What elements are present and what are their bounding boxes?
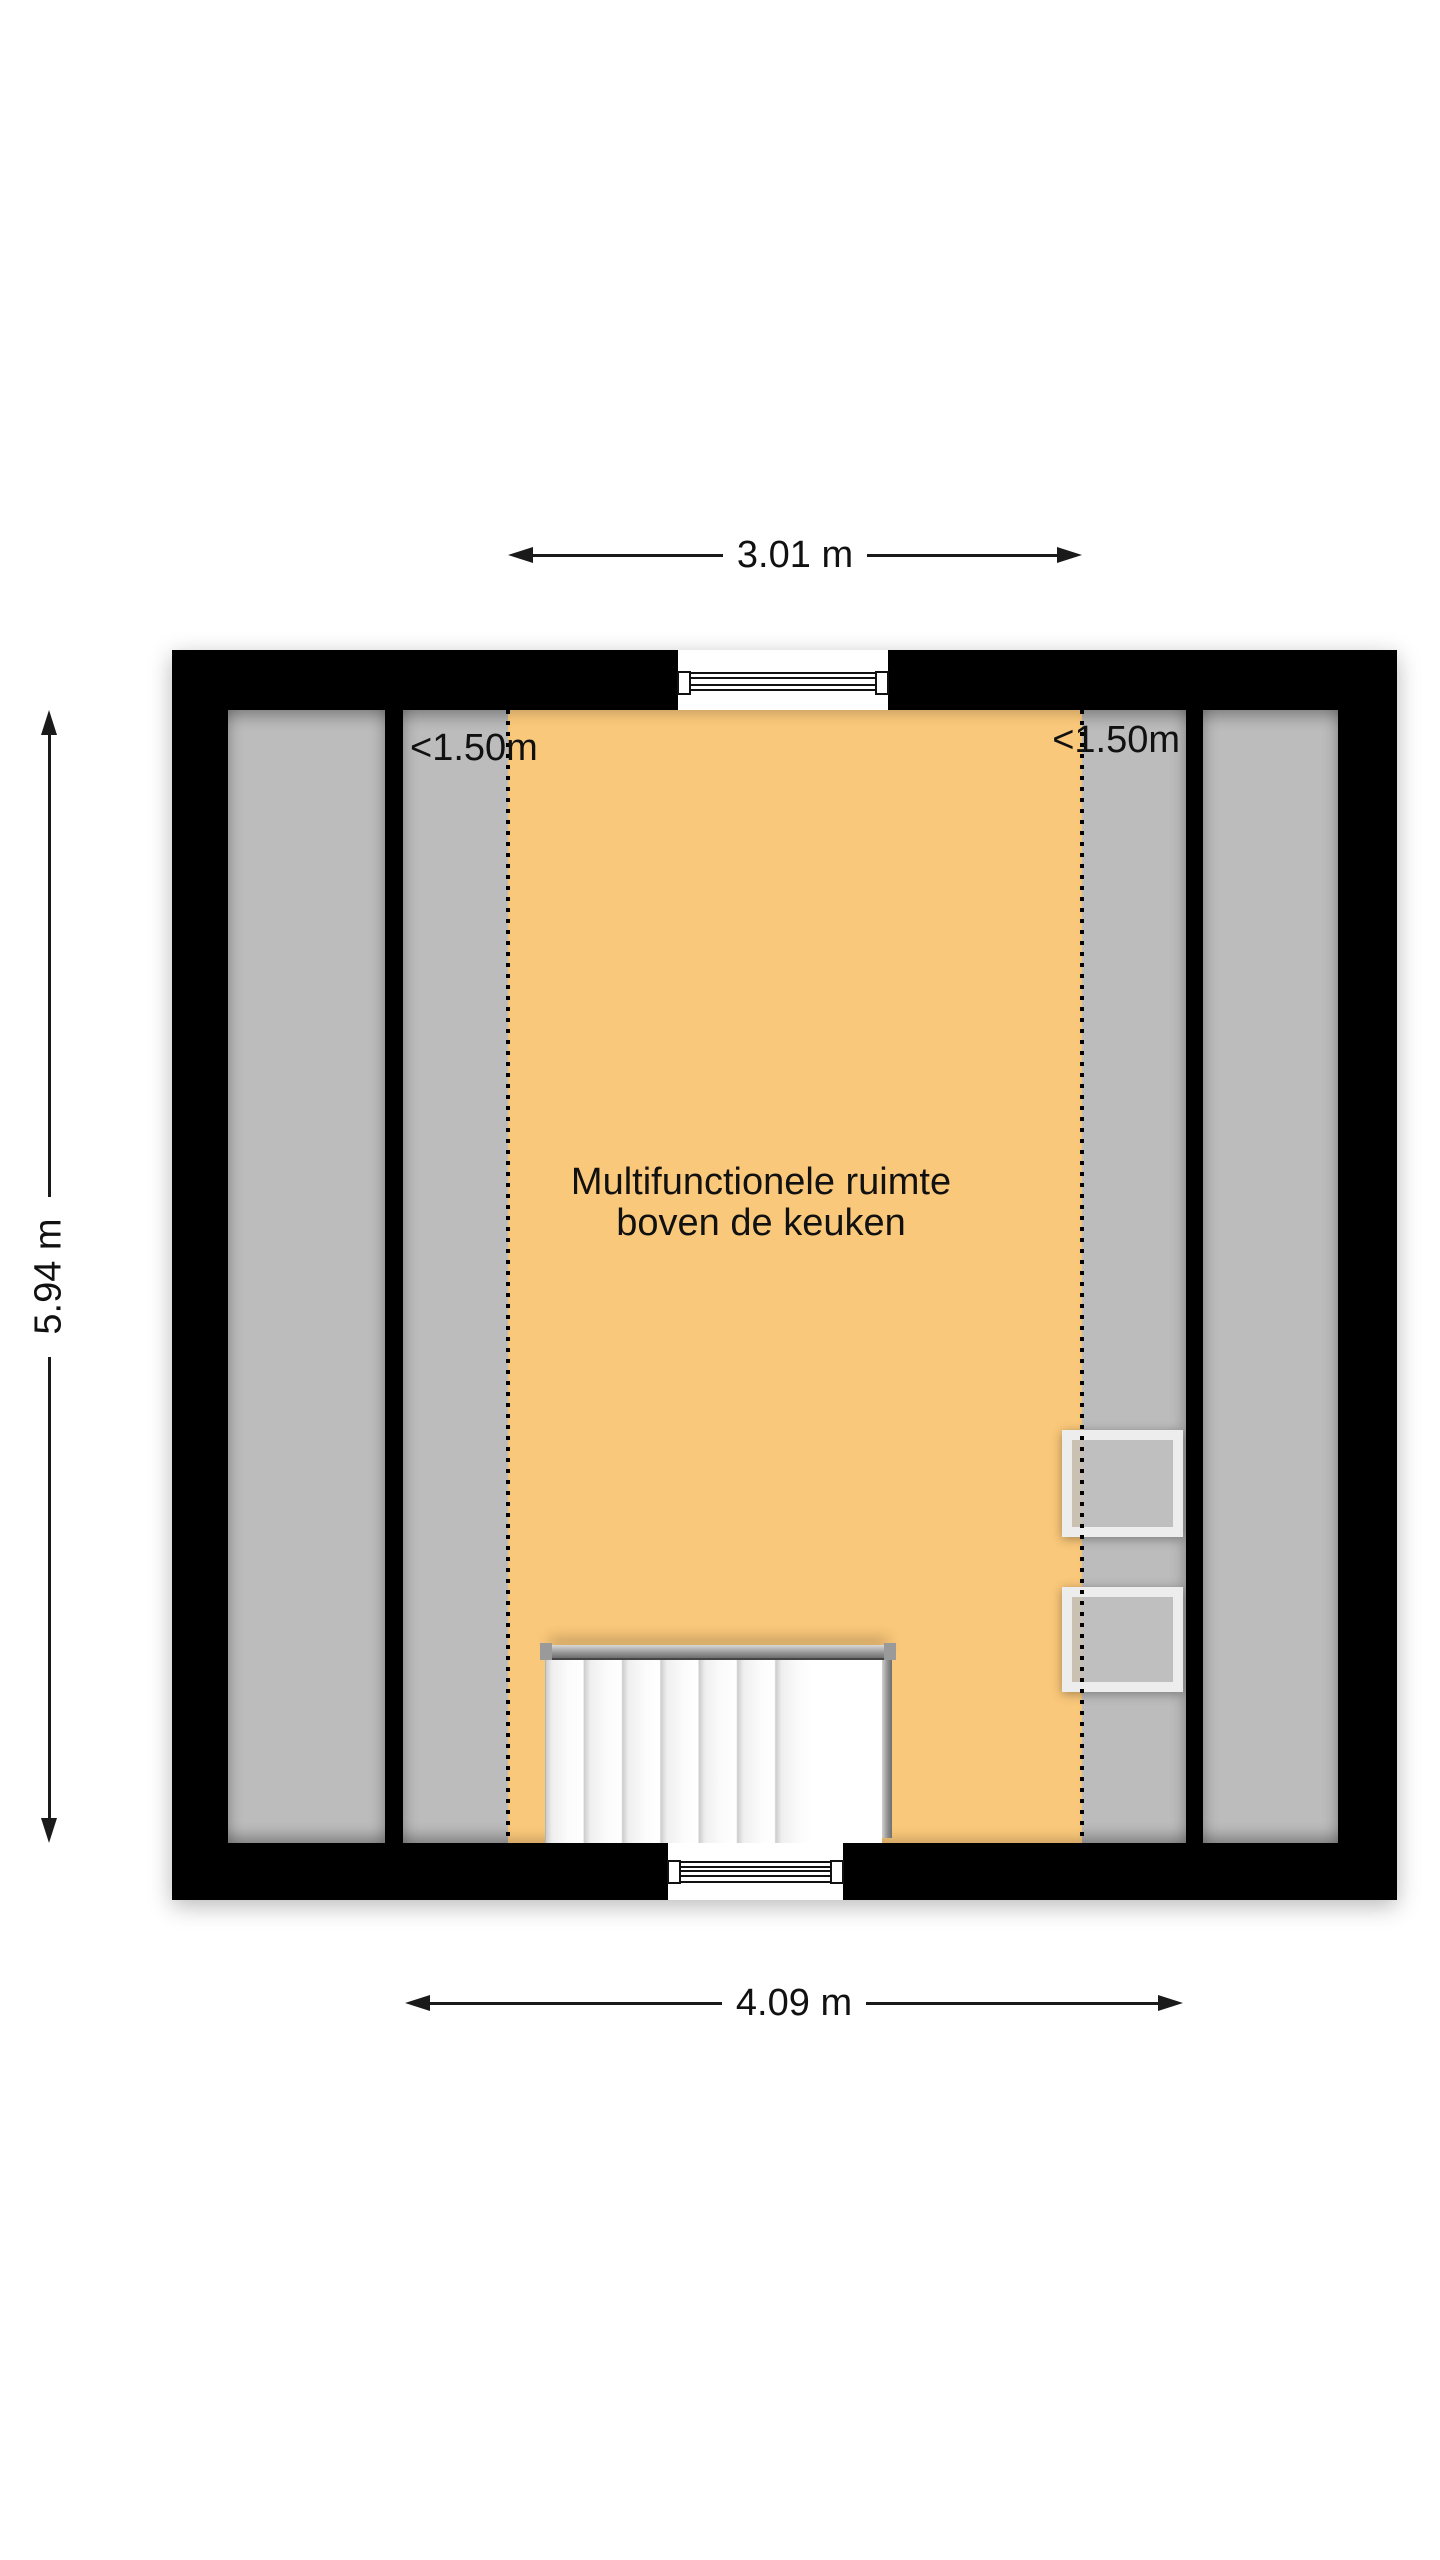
dimension-bottom-label: 4.09 m bbox=[736, 1982, 852, 2025]
arrow-left-icon bbox=[508, 547, 533, 563]
stair-treads bbox=[545, 1660, 814, 1843]
room-label: Multifunctionele ruimte boven de keuken bbox=[571, 1162, 951, 1244]
building-outline: <1.50m <1.50m Multifunctionele ruimte bo… bbox=[172, 650, 1397, 1900]
window-frame-cap bbox=[667, 1860, 681, 1884]
headroom-boundary-right bbox=[1080, 710, 1084, 1843]
room-label-line2: boven de keuken bbox=[571, 1203, 951, 1244]
stair-handrail-right bbox=[882, 1660, 892, 1838]
dimension-line bbox=[533, 554, 723, 557]
dimension-line bbox=[867, 554, 1057, 557]
stair-landing bbox=[813, 1660, 882, 1843]
dimension-line bbox=[48, 1357, 51, 1819]
arrow-right-icon bbox=[1057, 547, 1082, 563]
floor-plan-canvas: 3.01 m 5.94 m 4.09 m bbox=[0, 0, 1440, 2560]
window-bottom-icon bbox=[668, 1843, 843, 1900]
staircase-icon bbox=[545, 1645, 892, 1843]
arrow-right-icon bbox=[1158, 1995, 1183, 2011]
dimension-left: 5.94 m bbox=[26, 710, 72, 1843]
window-frame-cap bbox=[875, 671, 889, 695]
dimension-line bbox=[866, 2002, 1158, 2005]
window-frame-cap bbox=[677, 671, 691, 695]
side-area-right bbox=[1203, 710, 1338, 1843]
window-sill-line bbox=[668, 1881, 843, 1883]
headroom-label-left: <1.50m bbox=[410, 728, 538, 768]
stair-handrail-top bbox=[545, 1645, 892, 1660]
dimension-left-label-wrap: 5.94 m bbox=[0, 1197, 107, 1357]
dimension-line bbox=[48, 735, 51, 1197]
window-glazing bbox=[668, 1861, 843, 1877]
window-glazing bbox=[678, 672, 888, 691]
room-label-line1: Multifunctionele ruimte bbox=[571, 1162, 951, 1203]
dimension-left-label: 5.94 m bbox=[28, 1218, 71, 1334]
window-frame-cap bbox=[830, 1860, 844, 1884]
dimension-top-label: 3.01 m bbox=[737, 534, 853, 577]
dimension-line bbox=[430, 2002, 722, 2005]
dimension-bottom: 4.09 m bbox=[405, 1980, 1183, 2026]
side-area-left bbox=[228, 710, 385, 1843]
arrow-down-icon bbox=[41, 1818, 57, 1843]
arrow-left-icon bbox=[405, 1995, 430, 2011]
headroom-boundary-left bbox=[506, 710, 510, 1843]
dimension-top: 3.01 m bbox=[508, 532, 1082, 578]
arrow-up-icon bbox=[41, 710, 57, 735]
window-top-icon bbox=[678, 650, 888, 710]
headroom-label-right: <1.50m bbox=[1052, 720, 1180, 760]
